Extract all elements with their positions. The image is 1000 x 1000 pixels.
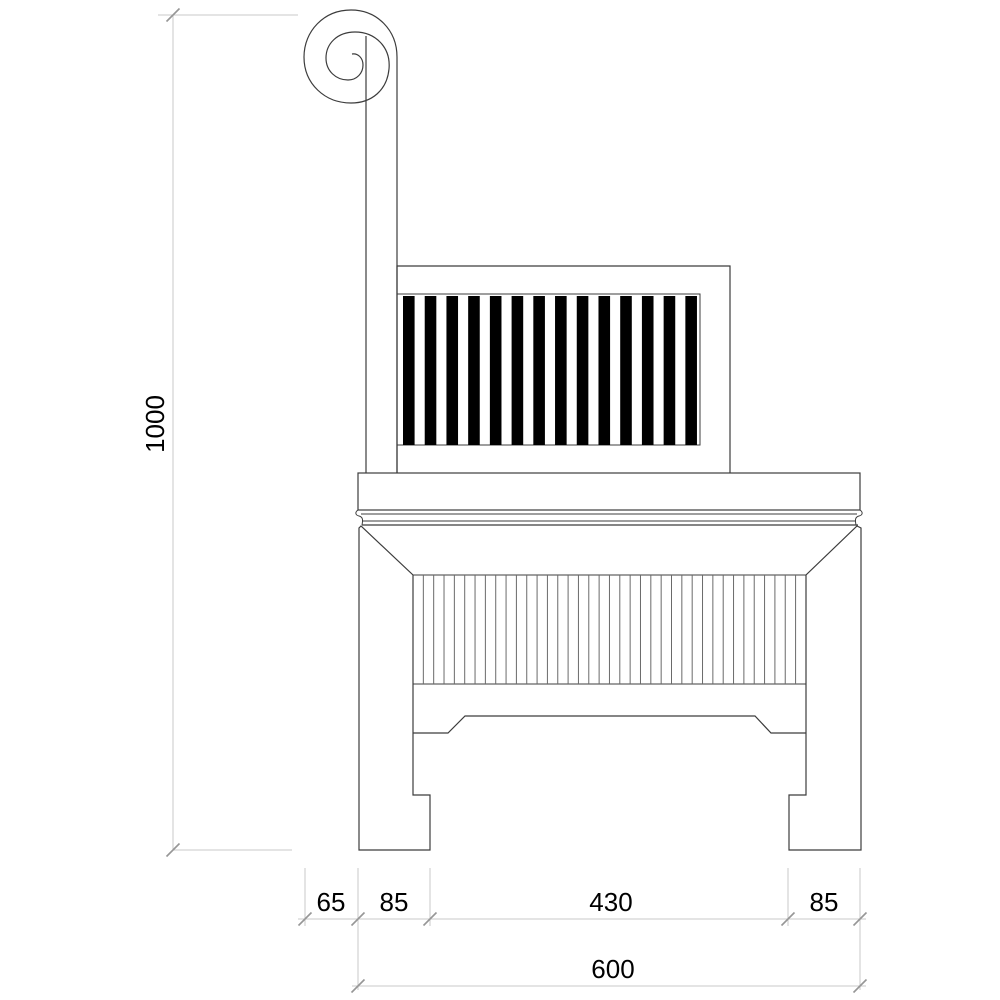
- apron-bottom-profile: [413, 716, 806, 733]
- technical-drawing-page: 1000 65 85 430 85 600: [0, 0, 1000, 1000]
- width-total-label: 600: [591, 954, 634, 984]
- segment-label-span: 430: [589, 887, 632, 917]
- seat: [356, 473, 862, 525]
- scroll-post: [304, 10, 397, 473]
- backrest-panel-border: [397, 294, 700, 445]
- backrest-slat: [685, 296, 697, 445]
- backrest-slat: [403, 296, 415, 445]
- backrest-slat: [664, 296, 676, 445]
- backrest-slat: [577, 296, 589, 445]
- dimension-annotations: 1000 65 85 430 85 600: [140, 9, 867, 993]
- apron-reeds: [423, 575, 795, 684]
- height-dim-label: 1000: [140, 395, 170, 453]
- backrest-slat: [446, 296, 458, 445]
- height-dimension: 1000: [140, 9, 298, 857]
- segment-label-overhang: 65: [317, 887, 346, 917]
- backrest-slat: [425, 296, 437, 445]
- apron: [362, 525, 858, 733]
- width-segments-dimension: 65 85 430 85: [298, 868, 867, 990]
- backrest-slat: [642, 296, 654, 445]
- waist-left-notch: [356, 510, 363, 525]
- backrest-slats: [403, 296, 697, 445]
- furniture-outline: [304, 10, 862, 850]
- backrest-frame: [397, 266, 730, 473]
- segment-label-left-leg: 85: [380, 887, 409, 917]
- segment-label-right-leg: 85: [810, 887, 839, 917]
- backrest-slat: [490, 296, 502, 445]
- backrest-slat: [620, 296, 632, 445]
- backrest-slat: [533, 296, 545, 445]
- backrest-slat: [555, 296, 567, 445]
- backrest-slat: [512, 296, 524, 445]
- furniture-elevation-drawing: 1000 65 85 430 85 600: [0, 0, 1000, 1000]
- backrest-slat: [598, 296, 610, 445]
- scroll-curve: [304, 10, 397, 473]
- width-total-dimension: 600: [352, 954, 867, 993]
- waist-right-notch: [855, 510, 862, 525]
- backrest-slat: [468, 296, 480, 445]
- seat-board: [358, 473, 860, 510]
